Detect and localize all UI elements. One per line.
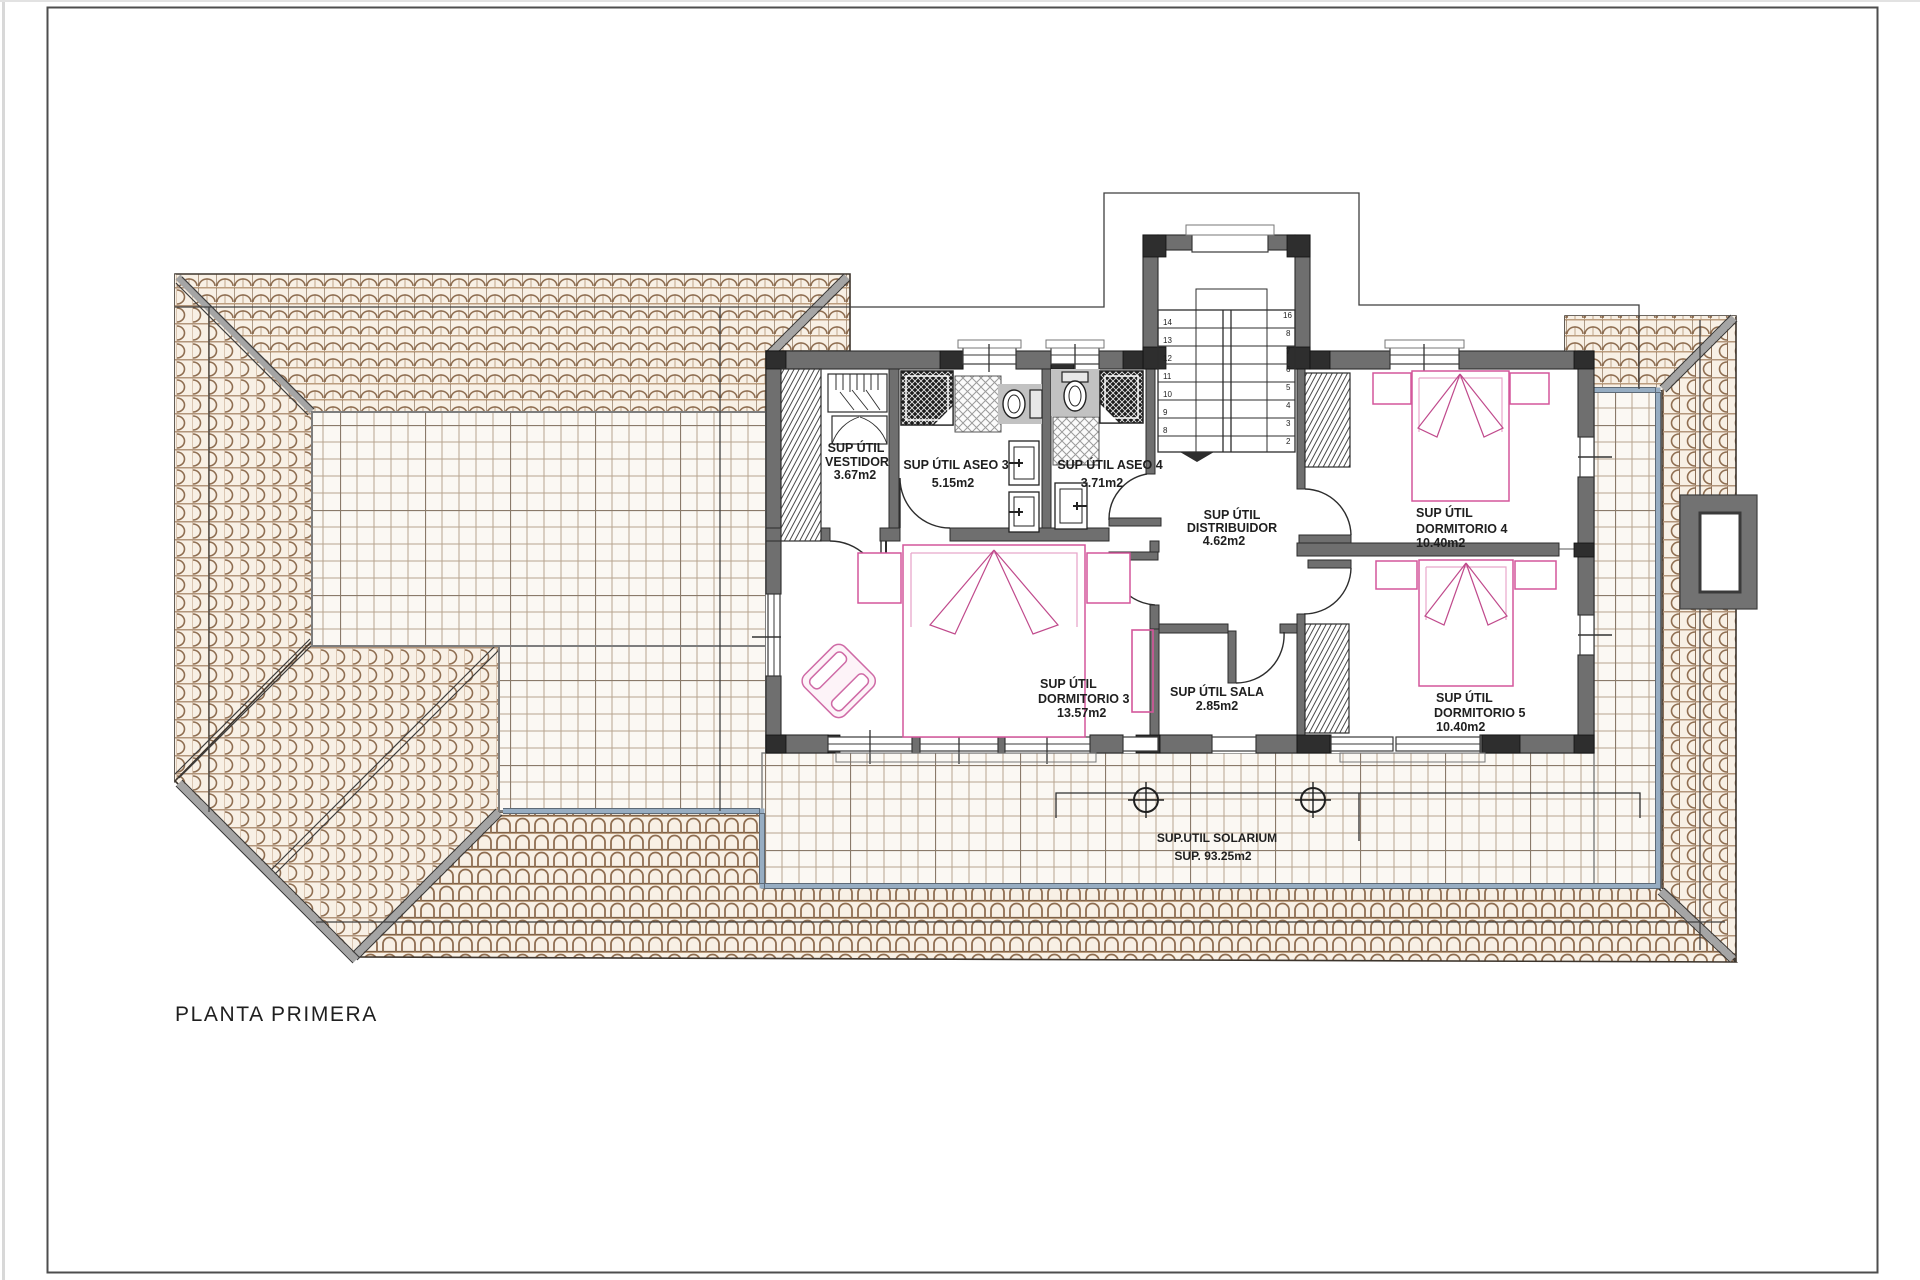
- svg-text:13.57m2: 13.57m2: [1057, 706, 1106, 720]
- svg-text:14: 14: [1163, 318, 1172, 327]
- svg-text:8: 8: [1286, 329, 1291, 338]
- svg-text:SUP ÚTIL: SUP ÚTIL: [1416, 505, 1473, 520]
- svg-text:10: 10: [1163, 390, 1172, 399]
- svg-text:DORMITORIO 5: DORMITORIO 5: [1434, 706, 1525, 720]
- svg-text:SUP ÚTIL: SUP ÚTIL: [828, 440, 885, 455]
- svg-text:11: 11: [1163, 372, 1172, 381]
- svg-text:3.71m2: 3.71m2: [1081, 476, 1123, 490]
- svg-text:DORMITORIO 3: DORMITORIO 3: [1038, 692, 1129, 706]
- svg-text:SUP.UTIL SOLARIUM: SUP.UTIL SOLARIUM: [1157, 831, 1277, 845]
- svg-text:3.67m2: 3.67m2: [834, 468, 876, 482]
- svg-text:SUP ÚTIL ASEO 3: SUP ÚTIL ASEO 3: [903, 457, 1008, 472]
- svg-text:DISTRIBUIDOR: DISTRIBUIDOR: [1187, 521, 1277, 535]
- svg-text:2: 2: [1286, 437, 1291, 446]
- svg-text:3: 3: [1286, 419, 1291, 428]
- svg-text:SUP ÚTIL: SUP ÚTIL: [1436, 690, 1493, 705]
- svg-text:6: 6: [1286, 365, 1291, 374]
- svg-text:7: 7: [1286, 347, 1291, 356]
- svg-text:VESTIDOR: VESTIDOR: [825, 455, 889, 469]
- svg-text:SUP ÚTIL SALA: SUP ÚTIL SALA: [1170, 684, 1264, 699]
- svg-text:SUP ÚTIL: SUP ÚTIL: [1204, 507, 1261, 522]
- svg-text:SUP ÚTIL ASEO 4: SUP ÚTIL ASEO 4: [1057, 457, 1162, 472]
- svg-text:16: 16: [1283, 311, 1292, 320]
- svg-text:SUP. 93.25m2: SUP. 93.25m2: [1174, 849, 1251, 863]
- svg-text:SUP ÚTIL: SUP ÚTIL: [1040, 676, 1097, 691]
- svg-text:8: 8: [1163, 426, 1168, 435]
- svg-text:13: 13: [1163, 336, 1172, 345]
- svg-text:5.15m2: 5.15m2: [932, 476, 974, 490]
- svg-text:4.62m2: 4.62m2: [1203, 534, 1245, 548]
- svg-text:2.85m2: 2.85m2: [1196, 699, 1238, 713]
- svg-text:9: 9: [1163, 408, 1168, 417]
- svg-text:5: 5: [1286, 383, 1291, 392]
- svg-text:10.40m2: 10.40m2: [1416, 536, 1465, 550]
- svg-text:PLANTA PRIMERA: PLANTA PRIMERA: [175, 1003, 378, 1026]
- svg-text:12: 12: [1163, 354, 1172, 363]
- svg-text:4: 4: [1286, 401, 1291, 410]
- svg-text:10.40m2: 10.40m2: [1436, 720, 1485, 734]
- svg-text:DORMITORIO 4: DORMITORIO 4: [1416, 522, 1507, 536]
